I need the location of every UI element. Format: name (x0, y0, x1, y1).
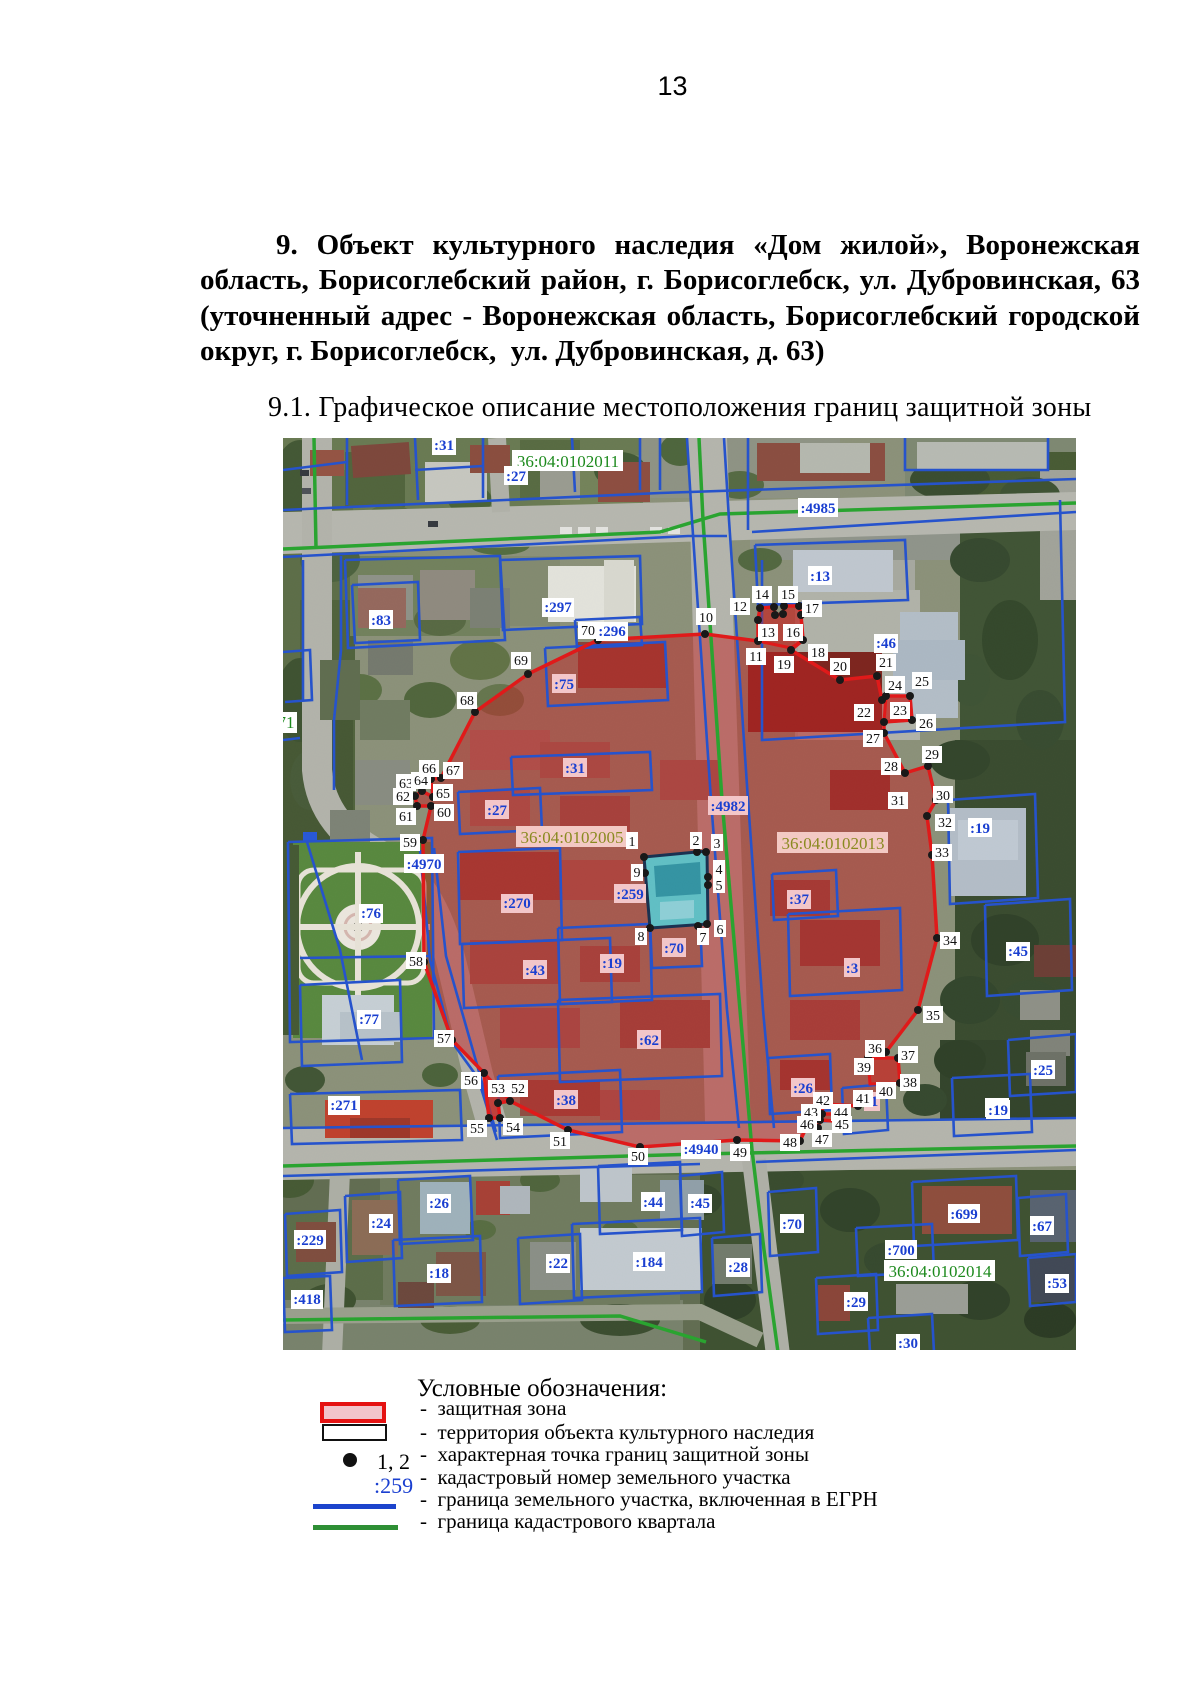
svg-text:36:04:0102014: 36:04:0102014 (889, 1262, 992, 1281)
svg-text::13: :13 (810, 569, 830, 585)
svg-text:49: 49 (733, 1146, 747, 1161)
svg-text:9: 9 (634, 866, 641, 881)
svg-text::4985: :4985 (801, 501, 836, 517)
svg-text:59: 59 (403, 836, 417, 851)
svg-text:25: 25 (915, 675, 929, 690)
svg-text:20: 20 (833, 660, 847, 675)
svg-text::26: :26 (429, 1196, 449, 1212)
svg-text:68: 68 (460, 694, 474, 709)
svg-text::44: :44 (643, 1195, 663, 1211)
svg-text::83: :83 (371, 613, 391, 629)
svg-text::297: :297 (544, 600, 572, 616)
svg-text:70: 70 (581, 624, 595, 639)
svg-text:60: 60 (437, 806, 451, 821)
svg-text:47: 47 (815, 1133, 829, 1148)
svg-text::37: :37 (789, 892, 809, 908)
svg-text::4982: :4982 (711, 799, 746, 815)
svg-text:21: 21 (879, 656, 893, 671)
svg-text::271: :271 (330, 1098, 358, 1114)
svg-text:67: 67 (446, 764, 460, 779)
svg-text:28: 28 (884, 760, 898, 775)
svg-text:34: 34 (943, 934, 957, 949)
svg-text::29: :29 (846, 1295, 866, 1311)
svg-text::45: :45 (1008, 944, 1028, 960)
svg-text::259: :259 (616, 887, 644, 903)
svg-text:57: 57 (437, 1032, 451, 1047)
svg-text:55: 55 (470, 1122, 484, 1137)
svg-text:51: 51 (553, 1135, 567, 1150)
svg-text:14: 14 (755, 588, 769, 603)
svg-text::296: :296 (598, 624, 626, 640)
svg-text:54: 54 (506, 1121, 520, 1136)
svg-text:46: 46 (800, 1118, 814, 1133)
svg-text:50: 50 (631, 1150, 645, 1165)
svg-text:7: 7 (700, 931, 707, 946)
svg-text::27: :27 (487, 803, 507, 819)
svg-text:30: 30 (936, 789, 950, 804)
svg-text::53: :53 (1047, 1276, 1067, 1292)
svg-text::4970: :4970 (407, 857, 442, 873)
svg-text::27: :27 (506, 469, 526, 485)
svg-text::70: :70 (664, 941, 684, 957)
svg-text:18: 18 (811, 646, 825, 661)
svg-text::38: :38 (556, 1093, 576, 1109)
svg-text::700: :700 (887, 1243, 915, 1259)
svg-text:41: 41 (856, 1092, 870, 1107)
svg-text:24: 24 (888, 679, 902, 694)
svg-text:8: 8 (638, 930, 645, 945)
svg-text:71: 71 (283, 713, 295, 732)
svg-text::184: :184 (635, 1255, 663, 1271)
svg-text:1: 1 (629, 835, 636, 850)
svg-text:53: 53 (491, 1082, 505, 1097)
svg-text::18: :18 (429, 1266, 449, 1282)
svg-text::70: :70 (782, 1217, 802, 1233)
svg-text::31: :31 (565, 761, 585, 777)
svg-text:35: 35 (926, 1009, 940, 1024)
svg-text::31: :31 (434, 438, 454, 454)
svg-text:26: 26 (919, 717, 933, 732)
svg-text:3: 3 (714, 837, 721, 852)
svg-text:61: 61 (399, 810, 413, 825)
svg-text:36:04:0102013: 36:04:0102013 (782, 834, 885, 853)
svg-text:69: 69 (514, 654, 528, 669)
svg-text::26: :26 (793, 1081, 813, 1097)
svg-text::24: :24 (371, 1216, 391, 1232)
svg-text:10: 10 (699, 611, 713, 626)
svg-text:15: 15 (781, 588, 795, 603)
svg-text::76: :76 (361, 906, 381, 922)
svg-text:38: 38 (903, 1076, 917, 1091)
svg-text:37: 37 (901, 1049, 915, 1064)
svg-text:4: 4 (716, 863, 723, 878)
svg-text:29: 29 (925, 748, 939, 763)
svg-text:16: 16 (786, 626, 800, 641)
svg-text:45: 45 (835, 1118, 849, 1133)
svg-text::28: :28 (728, 1260, 748, 1276)
svg-text::62: :62 (639, 1033, 659, 1049)
svg-text::229: :229 (296, 1233, 324, 1249)
svg-text:23: 23 (893, 704, 907, 719)
svg-text::30: :30 (898, 1336, 918, 1350)
svg-text:48: 48 (783, 1136, 797, 1151)
svg-text:2: 2 (693, 834, 700, 849)
svg-text::75: :75 (554, 677, 574, 693)
svg-text:17: 17 (805, 602, 819, 617)
svg-text:39: 39 (857, 1061, 871, 1076)
svg-text:5: 5 (716, 879, 723, 894)
svg-text:33: 33 (935, 846, 949, 861)
svg-text::25: :25 (1033, 1063, 1053, 1079)
svg-text:56: 56 (464, 1074, 478, 1089)
svg-text::3: :3 (846, 961, 859, 977)
svg-text:22: 22 (857, 706, 871, 721)
svg-text:6: 6 (717, 923, 724, 938)
svg-text::19: :19 (970, 821, 990, 837)
svg-text:40: 40 (879, 1085, 893, 1100)
svg-text:13: 13 (761, 626, 775, 641)
svg-text::4940: :4940 (684, 1142, 719, 1158)
svg-text:27: 27 (866, 732, 880, 747)
svg-text:12: 12 (733, 600, 747, 615)
svg-text:32: 32 (938, 816, 952, 831)
svg-text:36: 36 (868, 1042, 882, 1057)
svg-text::418: :418 (293, 1292, 321, 1308)
svg-text:19: 19 (777, 658, 791, 673)
svg-text::22: :22 (548, 1256, 568, 1272)
svg-text:66: 66 (422, 762, 436, 777)
svg-text::67: :67 (1032, 1219, 1052, 1235)
svg-text::19: :19 (602, 956, 622, 972)
svg-text::699: :699 (950, 1207, 978, 1223)
svg-text::77: :77 (359, 1012, 379, 1028)
svg-text:65: 65 (436, 787, 450, 802)
svg-text::45: :45 (690, 1196, 710, 1212)
svg-text:11: 11 (749, 650, 762, 665)
svg-text:36:04:0102011: 36:04:0102011 (517, 452, 619, 471)
svg-text:62: 62 (396, 790, 410, 805)
svg-text::270: :270 (503, 896, 531, 912)
svg-text::43: :43 (525, 963, 545, 979)
svg-text:31: 31 (891, 794, 905, 809)
svg-text:63: 63 (399, 777, 413, 792)
svg-text:58: 58 (409, 955, 423, 970)
svg-text:52: 52 (511, 1082, 525, 1097)
svg-text::19: :19 (988, 1103, 1008, 1119)
svg-text:36:04:0102005: 36:04:0102005 (521, 828, 624, 847)
svg-text::46: :46 (876, 636, 896, 652)
